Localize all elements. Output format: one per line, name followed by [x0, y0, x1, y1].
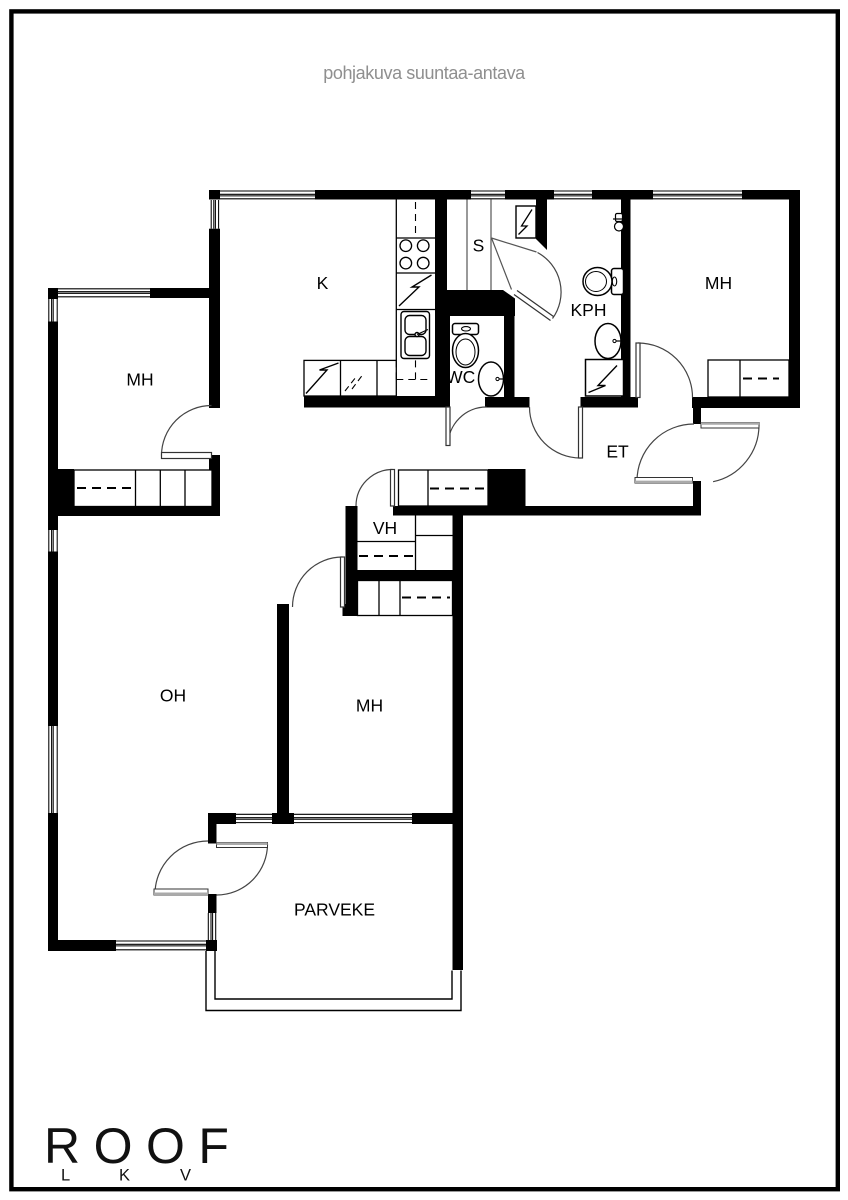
svg-text:MH: MH — [126, 370, 153, 390]
svg-text:V: V — [180, 1167, 191, 1185]
svg-text:OH: OH — [160, 686, 186, 706]
svg-text:K: K — [119, 1167, 130, 1185]
svg-text:pohjakuva suuntaa-antava: pohjakuva suuntaa-antava — [323, 63, 526, 83]
svg-text:ROOF: ROOF — [44, 1118, 242, 1174]
svg-text:MH: MH — [356, 696, 383, 716]
svg-text:K: K — [317, 273, 329, 293]
svg-text:VH: VH — [373, 518, 397, 538]
svg-text:WC: WC — [446, 367, 475, 387]
svg-text:MH: MH — [705, 273, 732, 293]
svg-text:ET: ET — [606, 442, 629, 462]
svg-text:S: S — [473, 236, 485, 256]
svg-text:KPH: KPH — [571, 300, 607, 320]
svg-text:L: L — [61, 1167, 70, 1185]
svg-text:PARVEKE: PARVEKE — [294, 900, 375, 920]
